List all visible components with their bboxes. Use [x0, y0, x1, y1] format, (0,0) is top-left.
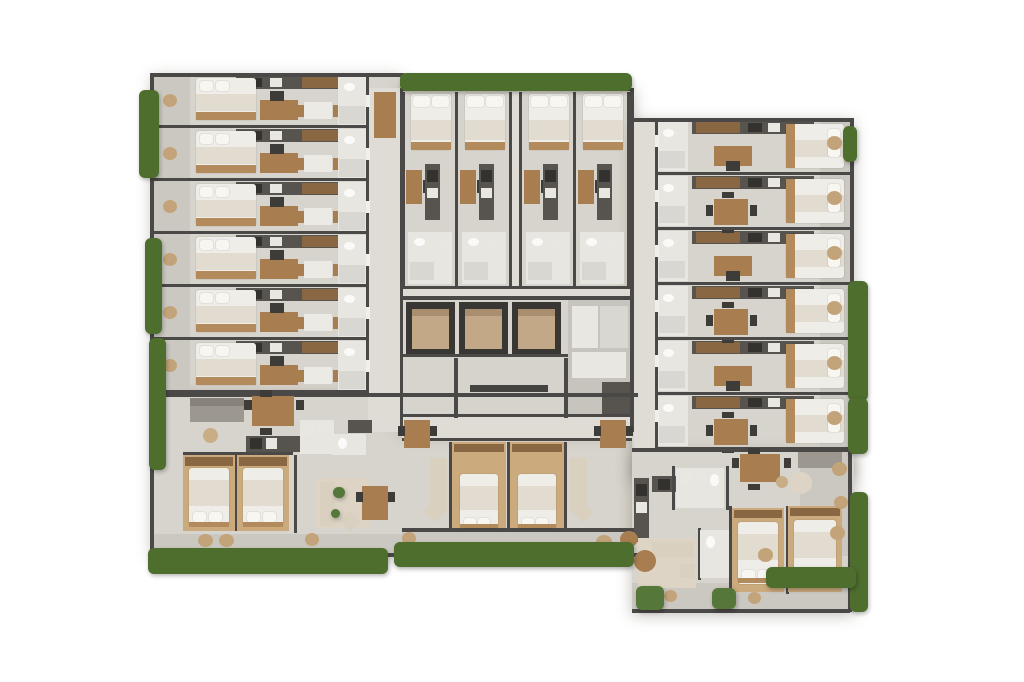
hedge	[400, 73, 632, 91]
door-mark	[366, 360, 370, 372]
chair-dark	[750, 425, 757, 436]
wood-furniture	[260, 206, 298, 226]
bed-headboard	[196, 112, 256, 120]
chair-dark	[398, 426, 405, 436]
wood-furniture	[297, 317, 304, 329]
chair-dark	[270, 303, 284, 313]
chair-tan	[827, 136, 842, 150]
pillow	[263, 512, 276, 522]
closet-wood	[512, 444, 562, 452]
shower	[410, 262, 434, 280]
duvet	[196, 306, 256, 323]
wood-furniture	[260, 153, 298, 173]
elevator-cabin-top	[465, 309, 502, 316]
chair-dark	[270, 250, 284, 260]
chair-tan	[758, 548, 773, 562]
duvet	[460, 486, 498, 510]
toilet	[710, 474, 719, 486]
shower	[659, 151, 685, 168]
plant	[636, 586, 664, 610]
bed-headboard	[189, 522, 229, 527]
wall	[672, 466, 675, 510]
hedge	[843, 126, 857, 162]
wood-furniture	[374, 92, 396, 138]
appliance-white	[696, 472, 706, 480]
wall	[454, 358, 458, 418]
bed-headboard	[786, 344, 795, 388]
bed-headboard	[196, 165, 256, 173]
lamp	[776, 476, 788, 488]
appliance-white	[636, 502, 647, 513]
chair-tan	[748, 592, 761, 604]
chair-dark	[270, 197, 284, 207]
pillow	[216, 187, 229, 197]
hedge	[766, 567, 856, 588]
chair-tan	[827, 246, 842, 260]
shower	[339, 318, 365, 336]
toilet	[532, 238, 543, 246]
closet-wood	[696, 287, 740, 298]
chair-tan	[198, 534, 213, 547]
white-table	[304, 102, 332, 119]
wall	[402, 92, 405, 288]
chair-dark	[388, 492, 395, 502]
bed-headboard	[786, 124, 795, 168]
toilet	[663, 239, 674, 247]
closet-wood	[734, 510, 782, 518]
wall	[402, 528, 634, 532]
toilet	[414, 238, 425, 246]
appliance-white	[768, 398, 780, 407]
pillow	[209, 512, 222, 522]
pillow	[200, 346, 213, 356]
chair-tan	[219, 534, 234, 547]
wood-furniture	[600, 420, 626, 448]
wood-furniture	[406, 170, 422, 204]
shower	[600, 306, 628, 348]
bed-headboard	[196, 377, 256, 385]
appliance-white	[572, 352, 626, 378]
bed-headboard	[460, 524, 498, 528]
duvet	[465, 120, 505, 140]
door-mark	[655, 355, 659, 367]
chair-dark	[722, 302, 734, 308]
appliance-white	[270, 290, 282, 299]
chair-dark	[706, 205, 713, 216]
chair-dark	[722, 192, 734, 198]
corridor-floor	[634, 122, 656, 452]
pillow	[604, 96, 621, 107]
toilet	[344, 189, 355, 197]
duvet	[196, 359, 256, 376]
wall	[658, 172, 854, 175]
chair-dark	[750, 315, 757, 326]
chair-dark	[270, 91, 284, 101]
lamp	[203, 428, 218, 443]
plant	[331, 509, 340, 518]
duvet	[196, 147, 256, 164]
wood-furniture	[404, 420, 430, 448]
wall	[152, 337, 369, 340]
duvet	[243, 480, 283, 506]
wall	[152, 125, 369, 128]
shower	[464, 262, 488, 280]
chair-dark	[784, 458, 791, 468]
pillow	[486, 96, 503, 107]
appliance-dark	[748, 178, 762, 187]
appliance-white	[304, 424, 315, 435]
toilet	[344, 242, 355, 250]
chair-dark	[270, 144, 284, 154]
appliance-white	[266, 438, 277, 449]
closet-wood	[696, 122, 740, 133]
duvet	[411, 120, 451, 140]
bed-headboard	[411, 142, 451, 150]
appliance-dark	[748, 398, 762, 407]
appliance-white	[270, 184, 282, 193]
appliance-white	[545, 188, 556, 198]
hedge	[850, 492, 868, 612]
door-mark	[655, 135, 659, 147]
shower	[339, 106, 365, 124]
wood-furniture	[714, 199, 748, 225]
pillow	[216, 81, 229, 91]
elevator-cabin-top	[412, 309, 449, 316]
wood-furniture	[260, 259, 298, 279]
bed-headboard	[465, 142, 505, 150]
closet-wood	[696, 177, 740, 188]
toilet	[344, 136, 355, 144]
closet-wood	[454, 444, 504, 452]
chair-dark	[244, 400, 252, 410]
wall	[152, 178, 369, 181]
hedge	[149, 338, 166, 470]
closet-wood	[185, 457, 233, 466]
chair-dark	[706, 425, 713, 436]
chair-tan	[163, 306, 177, 319]
appliance-white	[599, 188, 610, 198]
chair-dark	[430, 426, 437, 436]
door-mark	[655, 300, 659, 312]
bed-headboard	[786, 289, 795, 333]
pillow	[467, 96, 484, 107]
pillow	[200, 81, 213, 91]
chair-tan	[827, 191, 842, 205]
wall	[402, 286, 632, 289]
shower	[659, 206, 685, 223]
shower	[528, 262, 552, 280]
duvet	[583, 120, 623, 140]
wall	[658, 282, 854, 285]
sofa-beige	[320, 482, 335, 526]
hedge	[848, 281, 868, 401]
chair-dark	[748, 448, 760, 454]
appliance-white	[706, 556, 717, 564]
white-table	[304, 155, 332, 172]
shower	[339, 265, 365, 283]
wall	[152, 231, 369, 234]
white-table	[304, 314, 332, 331]
appliance-white	[427, 188, 438, 198]
toilet	[663, 129, 674, 137]
chair-tan	[827, 411, 842, 425]
wall	[402, 414, 634, 417]
pillow	[550, 96, 567, 107]
closet-wood	[696, 397, 740, 408]
bed-headboard	[529, 142, 569, 150]
toilet	[663, 404, 674, 412]
bed-headboard	[196, 218, 256, 226]
duvet	[196, 253, 256, 270]
toilet	[663, 184, 674, 192]
appliance-white	[270, 237, 282, 246]
chair-dark	[296, 400, 304, 410]
chair-dark	[726, 381, 740, 391]
bed-headboard	[243, 522, 283, 527]
pillow	[216, 240, 229, 250]
hedge	[394, 542, 634, 567]
appliance-dark	[748, 288, 762, 297]
appliance-white	[608, 238, 618, 246]
chair-tan	[163, 200, 177, 213]
shower	[339, 159, 365, 177]
toilet	[338, 438, 347, 449]
wall	[402, 438, 632, 441]
appliance-white	[680, 472, 692, 484]
door-mark	[366, 148, 370, 160]
sofa-beige	[680, 564, 695, 578]
chair-tan	[827, 356, 842, 370]
kitchen-counter	[348, 420, 372, 433]
wood-furniture	[740, 454, 780, 482]
door-mark	[366, 201, 370, 213]
bed-headboard	[518, 524, 556, 528]
bath-floor	[700, 530, 732, 578]
appliance-dark	[636, 484, 647, 496]
toilet	[706, 536, 715, 548]
appliance-white	[481, 188, 492, 198]
wall	[564, 442, 567, 528]
wood-furniture	[460, 170, 476, 204]
toilet	[663, 294, 674, 302]
door-mark	[366, 95, 370, 107]
appliance-white	[768, 123, 780, 132]
duvet	[518, 486, 556, 510]
wood-furniture	[260, 312, 298, 332]
corridor-floor	[368, 88, 400, 432]
wall	[509, 92, 512, 288]
wall	[294, 455, 297, 533]
wood-furniture	[578, 170, 594, 204]
floor-plan	[0, 0, 1024, 682]
wood-furniture	[297, 105, 304, 117]
pillow	[216, 346, 229, 356]
wall	[655, 120, 658, 450]
door-mark	[366, 307, 370, 319]
appliance-white	[768, 178, 780, 187]
wall	[519, 92, 522, 288]
wall	[658, 392, 854, 395]
pillow	[432, 96, 449, 107]
appliance-white	[318, 424, 328, 432]
appliance-white	[554, 238, 564, 246]
wall	[658, 227, 854, 230]
wood-furniture	[260, 100, 298, 120]
chair-tan	[163, 253, 177, 266]
shower	[339, 371, 365, 389]
bed-headboard	[196, 324, 256, 332]
door-mark	[655, 245, 659, 257]
hedge	[848, 398, 868, 454]
chair-dark	[270, 356, 284, 366]
wall	[630, 88, 634, 432]
chair-dark	[260, 390, 272, 397]
door-mark	[655, 190, 659, 202]
chair-tan	[664, 590, 677, 602]
wall	[455, 92, 458, 288]
duvet	[196, 94, 256, 111]
closet-wood	[239, 457, 287, 466]
wall	[507, 442, 510, 528]
chair-tan	[305, 533, 319, 546]
wood-furniture	[714, 309, 748, 335]
toilet	[344, 295, 355, 303]
chair-tan	[830, 526, 845, 540]
chair-dark	[594, 426, 601, 436]
appliance-white	[270, 78, 282, 87]
door-mark	[655, 410, 659, 422]
appliance-white	[572, 306, 598, 348]
wood-furniture	[524, 170, 540, 204]
pillow	[531, 96, 548, 107]
pillow	[200, 240, 213, 250]
chair-dark	[732, 458, 739, 468]
plant	[333, 487, 345, 498]
wall	[632, 609, 850, 613]
wall	[449, 442, 452, 528]
wood-furniture	[714, 419, 748, 445]
shower	[582, 262, 606, 280]
shower	[339, 212, 365, 230]
chair-dark	[626, 426, 633, 436]
toilet	[468, 238, 479, 246]
appliance-dark	[748, 343, 762, 352]
wood-furniture	[297, 158, 304, 170]
wood-furniture	[297, 264, 304, 276]
chair-dark	[356, 492, 363, 502]
hedge	[145, 238, 162, 334]
closet-wood	[790, 508, 840, 516]
toilet	[344, 348, 355, 356]
white-table	[304, 208, 332, 225]
pillow	[413, 96, 430, 107]
rug	[790, 472, 812, 494]
appliance-dark	[481, 170, 492, 182]
chair-dark	[726, 271, 740, 281]
chair-dark	[750, 205, 757, 216]
sofa-gray-dark	[190, 398, 244, 406]
toilet	[586, 238, 597, 246]
wood-furniture	[362, 486, 388, 520]
wall	[573, 92, 576, 288]
wall	[658, 337, 854, 340]
toilet	[344, 83, 355, 91]
pillow	[585, 96, 602, 107]
chair-dark	[726, 161, 740, 171]
chair-dark	[706, 315, 713, 326]
chair-tan	[832, 462, 847, 476]
white-table	[304, 261, 332, 278]
duvet	[189, 480, 229, 506]
chair-tan	[827, 301, 842, 315]
appliance-white	[270, 131, 282, 140]
pillow	[216, 293, 229, 303]
appliance-dark	[427, 170, 438, 182]
appliance-white	[768, 233, 780, 242]
wood-furniture	[260, 365, 298, 385]
wall	[366, 75, 369, 393]
wood-furniture	[297, 211, 304, 223]
closet-wood	[696, 232, 740, 243]
chair-tan	[834, 496, 848, 509]
appliance-dark	[250, 438, 262, 449]
pillow	[200, 134, 213, 144]
duvet	[529, 120, 569, 140]
duvet	[196, 200, 256, 217]
pillow	[200, 187, 213, 197]
wood-furniture	[252, 396, 294, 426]
appliance-dark	[748, 233, 762, 242]
appliance-white	[436, 238, 446, 246]
wall	[632, 118, 854, 122]
bed-headboard	[196, 271, 256, 279]
appliance-white	[490, 238, 500, 246]
shower	[659, 261, 685, 278]
shower	[659, 316, 685, 333]
chair-dark	[260, 428, 272, 435]
bed-headboard	[786, 399, 795, 443]
chair-tan	[163, 147, 177, 160]
appliance-dark	[545, 170, 556, 182]
stair-rail	[470, 385, 548, 392]
white-table	[304, 367, 332, 384]
appliance-white	[270, 343, 282, 352]
wall	[150, 393, 638, 397]
bed-headboard	[786, 234, 795, 278]
hedge	[148, 548, 388, 574]
bed-headboard	[583, 142, 623, 150]
appliance-dark	[658, 479, 670, 490]
sofa-beige	[652, 542, 694, 557]
chair-dark	[722, 412, 734, 418]
appliance-dark	[599, 170, 610, 182]
pillow	[216, 134, 229, 144]
bed-headboard	[786, 179, 795, 223]
shower	[659, 371, 685, 388]
elevator-cabin-top	[518, 309, 555, 316]
pillow	[247, 512, 260, 522]
wood-furniture	[634, 550, 656, 572]
plant	[712, 588, 736, 609]
chair-dark	[748, 484, 760, 490]
wall	[402, 354, 568, 357]
kitchen-counter	[602, 382, 630, 414]
wood-furniture	[297, 370, 304, 382]
appliance-white	[768, 288, 780, 297]
pillow	[193, 512, 206, 522]
appliance-dark	[748, 123, 762, 132]
shower	[659, 426, 685, 443]
